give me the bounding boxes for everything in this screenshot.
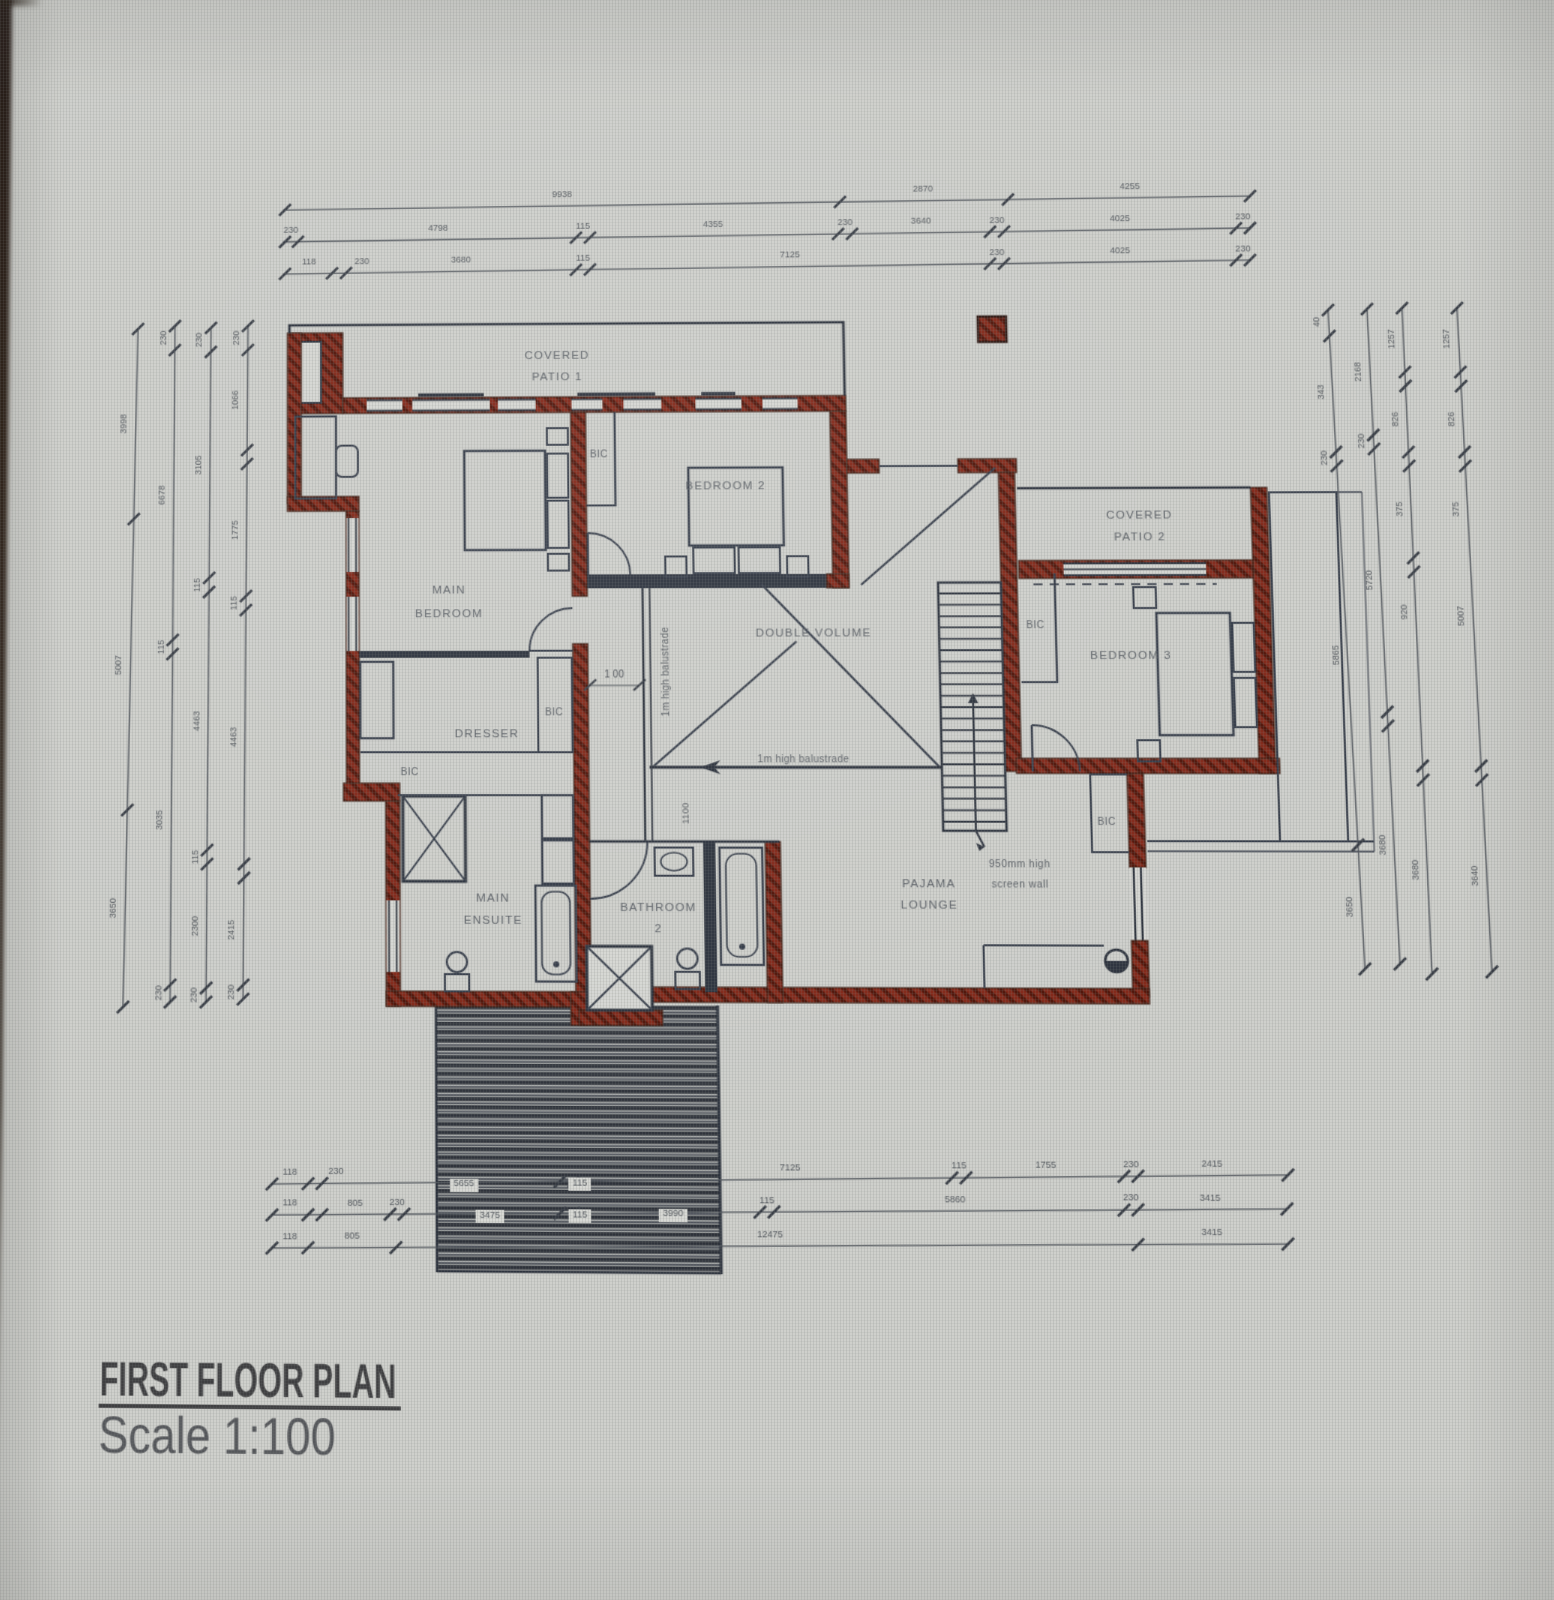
svg-text:PAJAMA: PAJAMA <box>902 878 956 891</box>
svg-text:BEDROOM: BEDROOM <box>415 608 483 621</box>
svg-text:3990: 3990 <box>663 1208 684 1219</box>
svg-text:3640: 3640 <box>911 216 931 226</box>
svg-text:1755: 1755 <box>1035 1159 1056 1170</box>
svg-text:7125: 7125 <box>780 250 800 260</box>
svg-text:PATIO 2: PATIO 2 <box>1114 531 1166 544</box>
svg-text:230: 230 <box>1235 211 1251 221</box>
svg-text:BIC: BIC <box>1097 816 1116 828</box>
svg-text:3650: 3650 <box>108 898 119 918</box>
svg-text:6678: 6678 <box>156 485 166 505</box>
svg-text:2415: 2415 <box>1201 1158 1222 1169</box>
svg-text:BIC: BIC <box>1026 620 1045 631</box>
svg-text:950mm high: 950mm high <box>989 859 1051 871</box>
svg-text:3640: 3640 <box>1469 866 1481 887</box>
svg-text:1257: 1257 <box>1386 329 1397 349</box>
svg-text:2300: 2300 <box>189 916 200 936</box>
svg-text:115: 115 <box>155 640 165 654</box>
svg-text:230: 230 <box>1123 1159 1139 1170</box>
svg-text:5860: 5860 <box>944 1193 965 1204</box>
svg-text:115: 115 <box>573 1177 588 1188</box>
svg-text:115: 115 <box>951 1160 966 1171</box>
svg-text:4463: 4463 <box>191 711 201 731</box>
svg-text:230: 230 <box>989 246 1005 256</box>
svg-text:3998: 3998 <box>119 414 129 434</box>
svg-text:115: 115 <box>192 578 202 592</box>
svg-text:230: 230 <box>1123 1192 1139 1203</box>
svg-text:1066: 1066 <box>230 390 240 410</box>
svg-text:230: 230 <box>194 333 204 348</box>
svg-text:2168: 2168 <box>1352 362 1363 382</box>
svg-text:5865: 5865 <box>1329 645 1340 665</box>
svg-text:7125: 7125 <box>780 1162 801 1173</box>
svg-text:BIC: BIC <box>401 767 419 778</box>
svg-text:118: 118 <box>283 1197 298 1208</box>
svg-text:230: 230 <box>158 331 168 346</box>
svg-text:1100: 1100 <box>680 803 691 825</box>
svg-text:115: 115 <box>573 1208 588 1219</box>
svg-text:115: 115 <box>576 221 591 231</box>
svg-text:115: 115 <box>229 596 239 610</box>
svg-text:805: 805 <box>347 1197 363 1208</box>
svg-text:COVERED: COVERED <box>525 350 590 363</box>
svg-text:BIC: BIC <box>545 707 563 718</box>
svg-text:230: 230 <box>1235 243 1251 253</box>
svg-text:826: 826 <box>1389 411 1400 426</box>
svg-text:230: 230 <box>189 987 200 1002</box>
svg-text:3680: 3680 <box>1376 835 1388 856</box>
svg-text:3415: 3415 <box>1201 1227 1222 1238</box>
svg-text:BIC: BIC <box>590 449 608 460</box>
svg-text:5007: 5007 <box>113 655 123 675</box>
svg-text:screen wall: screen wall <box>992 879 1049 891</box>
svg-text:FIRST FLOOR PLAN: FIRST FLOOR PLAN <box>100 1351 397 1408</box>
svg-text:4798: 4798 <box>428 223 448 233</box>
svg-text:230: 230 <box>1356 433 1367 448</box>
svg-text:375: 375 <box>1393 501 1404 516</box>
svg-text:115: 115 <box>759 1194 774 1205</box>
svg-text:5007: 5007 <box>1455 606 1467 626</box>
svg-text:PATIO 1: PATIO 1 <box>532 371 583 383</box>
svg-text:5655: 5655 <box>454 1178 475 1189</box>
svg-text:230: 230 <box>1319 450 1330 465</box>
svg-text:115: 115 <box>576 253 591 263</box>
svg-text:343: 343 <box>1315 384 1326 399</box>
svg-text:375: 375 <box>1450 501 1461 516</box>
svg-text:9938: 9938 <box>552 189 572 199</box>
svg-text:3475: 3475 <box>480 1209 501 1220</box>
svg-text:826: 826 <box>1445 411 1456 426</box>
svg-text:ENSUITE: ENSUITE <box>464 914 523 927</box>
svg-text:3415: 3415 <box>1199 1192 1220 1203</box>
svg-text:230: 230 <box>989 215 1005 225</box>
svg-text:COVERED: COVERED <box>1106 509 1173 522</box>
svg-text:115: 115 <box>190 850 201 865</box>
svg-text:1775: 1775 <box>229 520 239 540</box>
svg-text:3650: 3650 <box>1344 897 1356 918</box>
svg-text:230: 230 <box>837 217 852 227</box>
svg-text:4025: 4025 <box>1110 245 1131 255</box>
svg-text:3680: 3680 <box>451 254 471 264</box>
svg-text:230: 230 <box>328 1166 343 1177</box>
svg-text:DOUBLE VOLUME: DOUBLE VOLUME <box>755 627 871 640</box>
svg-text:5720: 5720 <box>1363 570 1374 590</box>
svg-text:2415: 2415 <box>226 920 237 940</box>
svg-text:LOUNGE: LOUNGE <box>901 899 958 912</box>
svg-text:230: 230 <box>389 1197 405 1208</box>
svg-text:1m high balustrade: 1m high balustrade <box>660 627 673 717</box>
svg-text:3035: 3035 <box>154 810 165 830</box>
svg-text:MAIN: MAIN <box>432 584 466 596</box>
svg-text:805: 805 <box>344 1230 360 1241</box>
svg-text:12475: 12475 <box>757 1228 783 1239</box>
svg-text:1257: 1257 <box>1441 329 1452 349</box>
svg-text:230: 230 <box>226 984 237 999</box>
svg-text:4463: 4463 <box>228 727 238 747</box>
svg-text:4255: 4255 <box>1120 181 1141 191</box>
svg-text:40: 40 <box>1311 317 1322 327</box>
svg-text:MAIN: MAIN <box>476 892 510 905</box>
svg-text:1m high balustrade: 1m high balustrade <box>758 754 850 766</box>
svg-text:3680: 3680 <box>1409 860 1421 881</box>
svg-text:118: 118 <box>302 257 316 267</box>
svg-text:230: 230 <box>284 225 299 235</box>
svg-text:118: 118 <box>283 1230 298 1241</box>
svg-text:3105: 3105 <box>193 455 203 475</box>
svg-text:230: 230 <box>231 330 241 345</box>
svg-text:4025: 4025 <box>1110 213 1131 223</box>
svg-text:DRESSER: DRESSER <box>455 728 519 741</box>
svg-text:BEDROOM 2: BEDROOM 2 <box>685 480 765 493</box>
svg-text:230: 230 <box>355 256 370 266</box>
svg-text:4355: 4355 <box>703 219 723 229</box>
svg-text:1 00: 1 00 <box>604 669 624 680</box>
svg-text:Scale 1:100: Scale 1:100 <box>98 1405 335 1466</box>
svg-text:230: 230 <box>153 985 164 1000</box>
svg-text:2870: 2870 <box>913 184 933 194</box>
svg-text:BEDROOM 3: BEDROOM 3 <box>1090 650 1172 663</box>
svg-text:118: 118 <box>283 1166 298 1177</box>
svg-text:2: 2 <box>655 923 663 936</box>
svg-text:920: 920 <box>1398 604 1409 619</box>
svg-text:BATHROOM: BATHROOM <box>620 901 697 914</box>
